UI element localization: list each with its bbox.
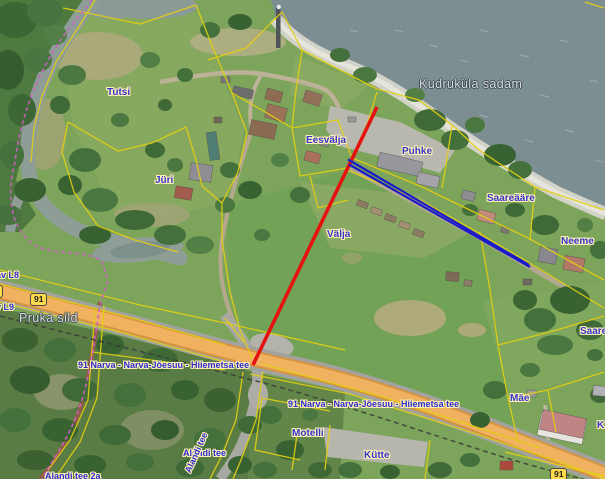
aerial-map-canvas — [0, 0, 605, 479]
map-viewport[interactable]: TutsiJüriEesväljaPuhkeVäljaSaareääreNeem… — [0, 0, 605, 479]
pier — [276, 6, 281, 48]
